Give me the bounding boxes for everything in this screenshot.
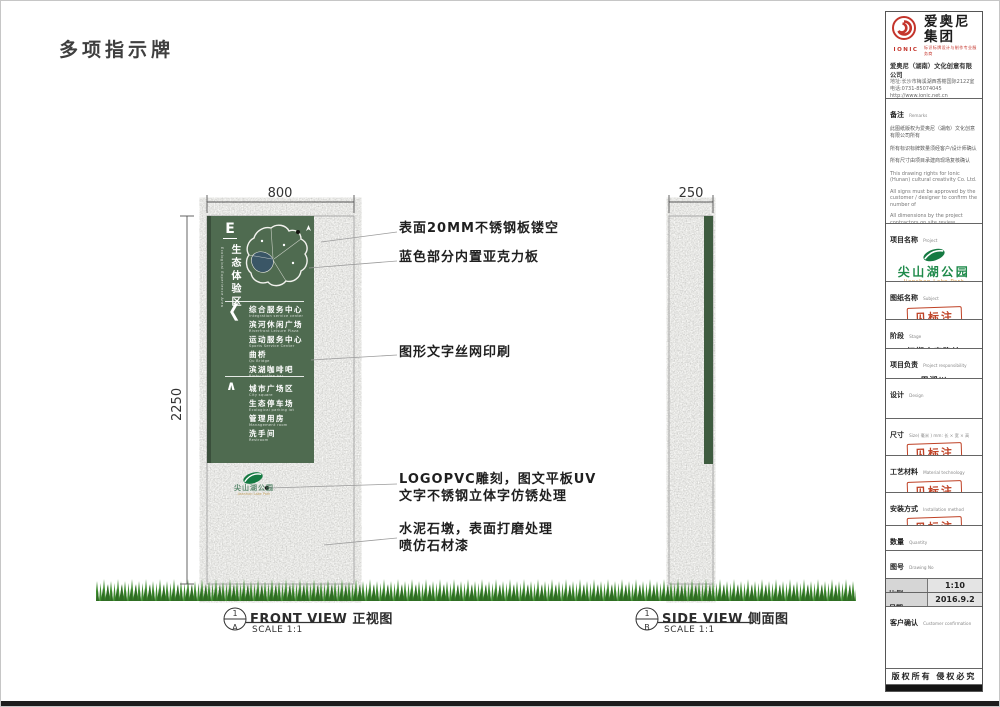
sign-item: 滨河休闲广场 Riverfront Leisure Plaza	[249, 321, 311, 334]
sign-item: 洗手间 Restroom	[249, 430, 311, 443]
zone-name-en: Ecological Experience Area	[220, 247, 224, 307]
svg-text:1: 1	[644, 609, 649, 618]
install-section: 安装方式 Installation method 见标注	[886, 493, 982, 526]
ionic-logo-icon	[890, 15, 918, 43]
see-note-stamp: 见标注	[906, 516, 962, 526]
dim-250-label: 250	[679, 186, 704, 201]
company-address: 地址:长沙市梅溪湖西香榭国际2122室	[890, 79, 978, 86]
sign-item: 生态停车场 Ecological parking lot	[249, 400, 311, 413]
date-row: 日期 Date 2016.9.2	[886, 593, 982, 607]
copyright-row: 版权所有 侵权必究	[886, 669, 982, 685]
front-view-scale: SCALE 1:1	[252, 625, 303, 635]
park-logo-front: 尖山湖公园 Jianshan Lake Park	[225, 470, 283, 496]
park-logo-icon	[919, 248, 949, 262]
design-section: 设计 Design	[886, 379, 982, 419]
sign-item: 管理用房 Management room	[249, 415, 311, 428]
sign-face: E Ecological Experience Area 生态体验区 ❮ 综合服…	[207, 216, 314, 463]
dim-800-label: 800	[268, 186, 293, 201]
sign-item: 曲桥 Qu Bridge	[249, 351, 311, 364]
annotation-steel: 表面20MM不锈钢板镂空	[399, 221, 614, 238]
annotation-silkscreen: 图形文字丝网印刷	[399, 345, 614, 362]
proportion-value: 1:10	[928, 579, 982, 592]
material-section: 工艺材料 Material technology 见标注	[886, 456, 982, 493]
title-block: IONIC 爱奥尼集团 标识标牌设计与制作专业服务商 爱奥尼（湖南）文化创意有限…	[885, 11, 983, 692]
quantity-section: 数量 Quantity	[886, 526, 982, 551]
sign-divider	[225, 376, 304, 377]
arrow-up-icon: ∧	[226, 379, 237, 394]
drawing-no-section: 图号 Drawing No	[886, 551, 982, 579]
see-note-stamp: 见标注	[906, 306, 962, 320]
title-block-footer-bar	[886, 685, 982, 691]
customer-section: 客户确认 Customer confirmation	[886, 607, 982, 669]
side-sign-strip	[704, 216, 713, 464]
see-note-stamp: 见标注	[906, 442, 962, 456]
responsibility-section: 项目负责 Project responsibility 周湘川	[886, 349, 982, 379]
side-view-scale: SCALE 1:1	[664, 625, 715, 635]
project-name: 尖山湖公园	[890, 266, 978, 279]
zone-letter: E	[223, 221, 237, 239]
project-section: 项目名称 Project 尖山湖公园 Jianshan Lake Park	[886, 224, 982, 282]
company-name: 爱奥尼集团	[924, 15, 978, 45]
company-logo: IONIC	[890, 15, 922, 53]
grass-strip	[96, 577, 856, 601]
svg-text:1: 1	[232, 609, 237, 618]
sign-item: 运动服务中心 Sports Service Center	[249, 336, 311, 349]
annotation-acrylic: 蓝色部分内置亚克力板	[399, 250, 614, 267]
drawing-sheet: 800 250 2250 1 A	[0, 0, 1000, 707]
see-note-stamp: 见标注	[906, 480, 962, 493]
company-header: IONIC 爱奥尼集团 标识标牌设计与制作专业服务商 爱奥尼（湖南）文化创意有限…	[886, 12, 982, 99]
zone-name: 生态体验区	[227, 244, 242, 309]
sign-item: 综合服务中心 Integration service center	[249, 306, 311, 319]
subject-section: 图纸名称 Subject 见标注	[886, 282, 982, 320]
sign-item: 城市广场区 City square	[249, 385, 311, 398]
proportion-row: 比例 Proportion 1:10	[886, 579, 982, 593]
date-value: 2016.9.2	[928, 593, 982, 606]
page-bottom-edge	[1, 701, 999, 706]
annotation-cement-base: 水泥石墩，表面打磨处理 喷仿石材漆	[399, 522, 614, 555]
company-tagline: 标识标牌设计与制作专业服务商	[924, 45, 978, 57]
arrow-left-icon: ❮	[228, 301, 241, 322]
svg-text:A: A	[232, 623, 238, 632]
annotation-logo-pvc: LOGOPVC雕刻，图文平板UV 文字不锈钢立体字仿锈处理	[399, 472, 614, 505]
remarks-section: 备注 Remarks 此图纸版权为爱奥尼（湖南）文化创意有限公司所有 所有标识标…	[886, 99, 982, 224]
dim-2250-label: 2250	[170, 388, 185, 421]
company-phone: 电话:0731-85074045	[890, 86, 978, 93]
size-section: 尺寸 Size( 毫米 ) mm: 长 × 宽 × 高 见标注	[886, 419, 982, 456]
svg-text:B: B	[644, 623, 650, 632]
company-fullname: 爱奥尼（湖南）文化创意有限公司	[890, 61, 978, 79]
page-title: 多项指示牌	[59, 35, 174, 62]
stage-section: 阶段 Stage 初期方案确认	[886, 320, 982, 350]
